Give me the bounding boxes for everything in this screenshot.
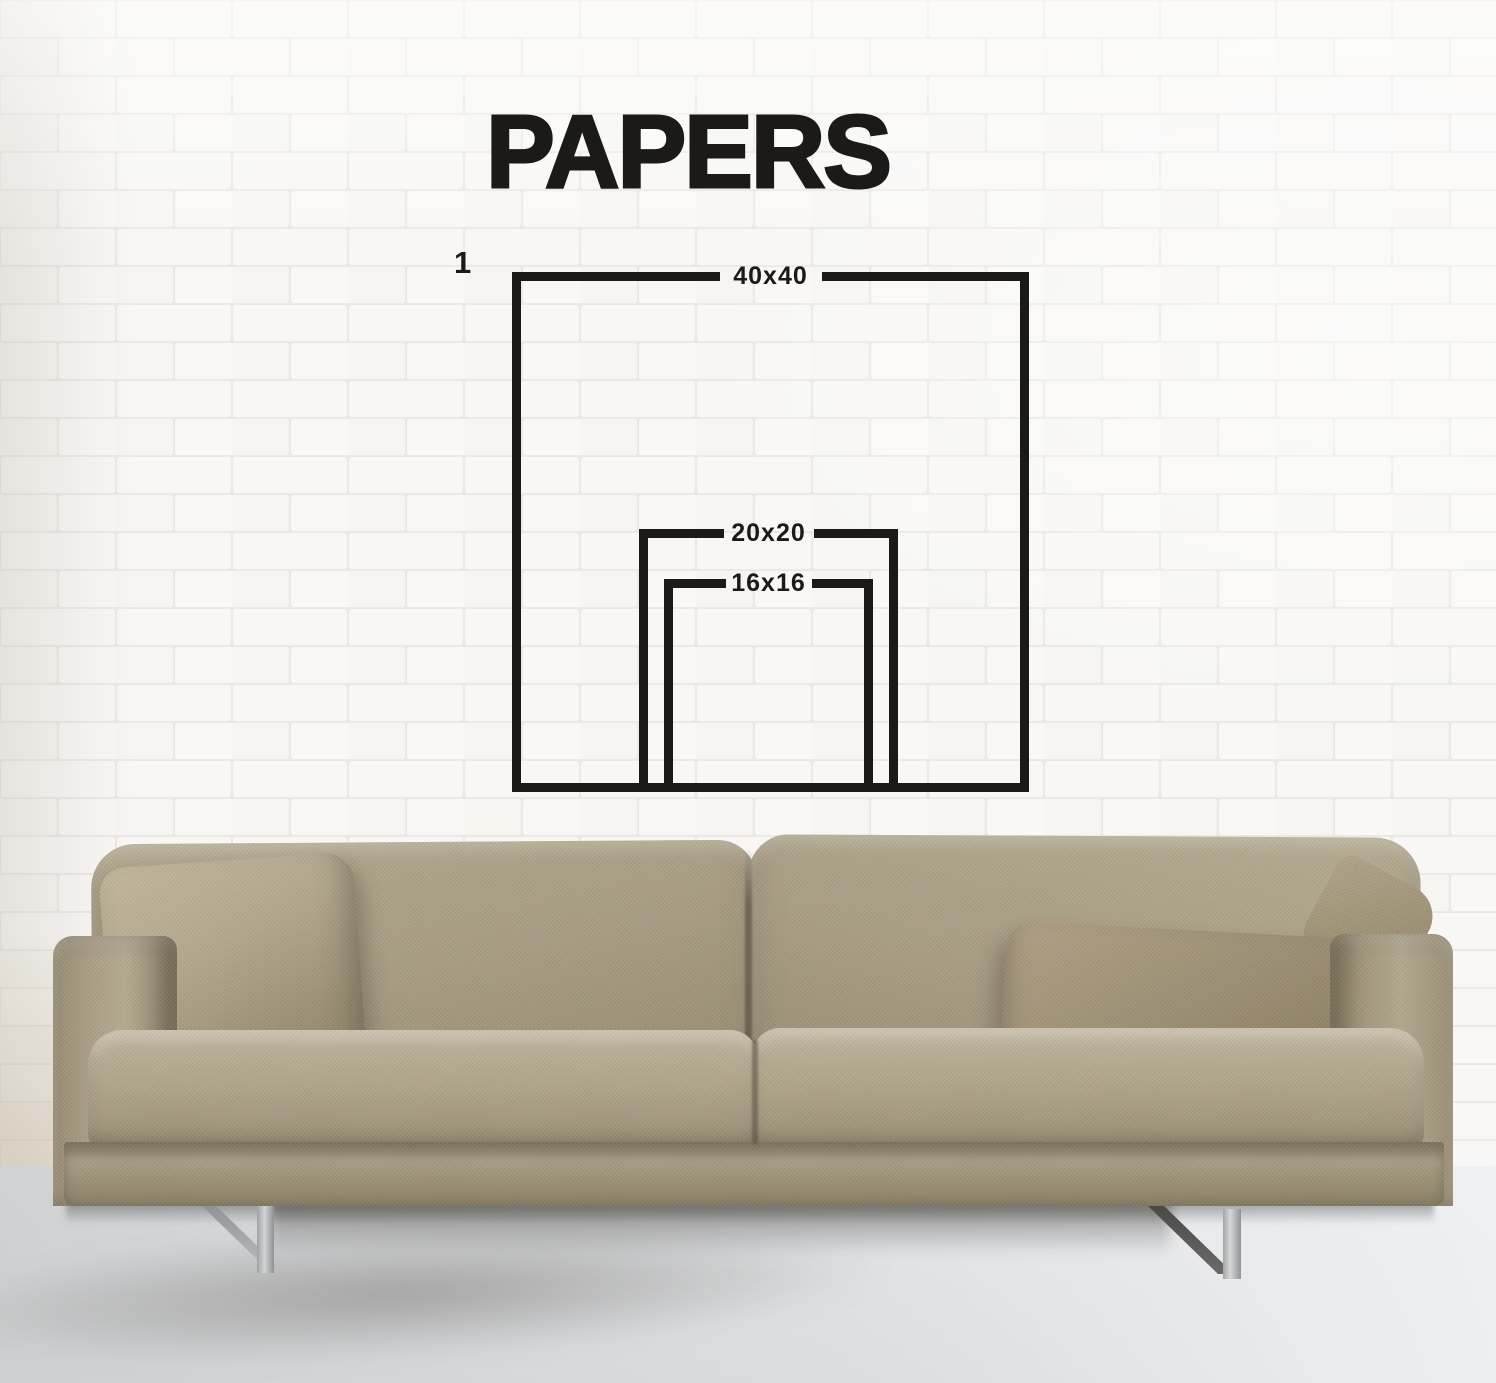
square-top-line-right <box>814 529 899 538</box>
sofa-right-leg <box>1223 1209 1241 1279</box>
square-top-line-left <box>639 529 724 538</box>
square-right-line <box>889 529 898 792</box>
square-left-line <box>664 579 673 792</box>
square-top-line-left <box>664 579 726 588</box>
square-bottom-line <box>664 783 873 792</box>
under-sofa-shadow <box>270 1200 1170 1262</box>
size-label-16x16: 16x16 <box>731 570 806 597</box>
sofa-base-frame <box>64 1142 1444 1206</box>
square-left-line <box>512 272 521 792</box>
sofa-seat-cushion-seam <box>752 1040 758 1144</box>
size-label-40x40: 40x40 <box>733 263 808 290</box>
diagram-index-label: 1 <box>454 247 471 278</box>
square-right-line <box>1020 272 1029 792</box>
page-title: PAPERS <box>486 100 890 203</box>
square-top-line-left <box>512 272 720 281</box>
square-left-line <box>639 529 648 792</box>
sofa-seat-cushion-right <box>752 1028 1424 1152</box>
sofa-left-leg <box>257 1203 274 1273</box>
size-square-16x16: 16x16 <box>664 579 873 792</box>
size-label-20x20: 20x20 <box>731 520 806 547</box>
square-top-line-right <box>822 272 1030 281</box>
sofa-seat-cushion-left <box>88 1030 758 1152</box>
product-size-guide-photo: PAPERS 1 40x40 20x20 16x16 <box>0 0 1496 1383</box>
square-right-line <box>864 579 873 792</box>
